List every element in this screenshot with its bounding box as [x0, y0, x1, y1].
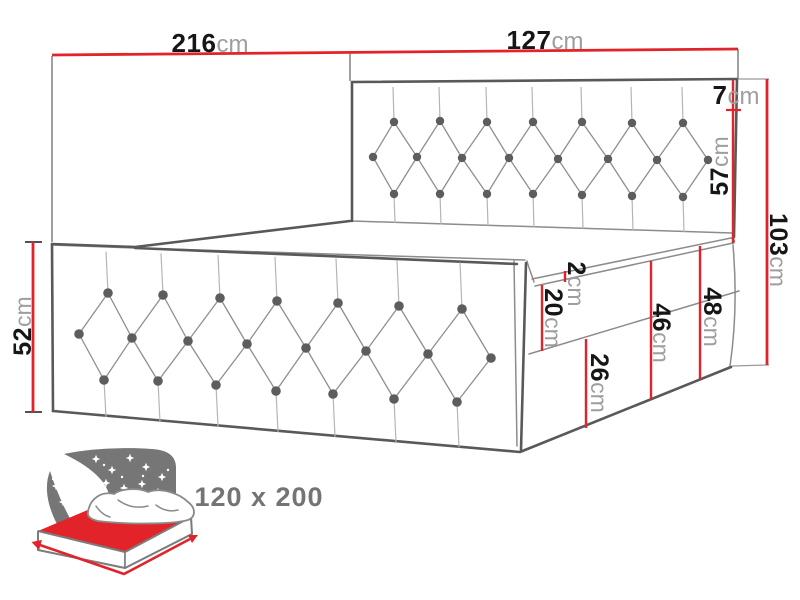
- icon-duvet: [88, 489, 194, 523]
- dim-label-20cm: 20cm: [539, 288, 567, 347]
- tufting-button: [679, 119, 687, 127]
- headboard-face: [352, 79, 737, 237]
- tufting-button: [301, 343, 311, 353]
- tufting-button: [153, 376, 163, 386]
- tufting-button: [529, 190, 537, 198]
- tufting-button: [333, 298, 343, 308]
- tufting-button: [486, 353, 496, 363]
- tufting-button: [271, 386, 281, 396]
- tufting-button: [328, 389, 338, 399]
- tufting-button: [158, 290, 168, 300]
- dim-line-216-127: [52, 49, 738, 55]
- tufting-button: [604, 155, 612, 163]
- extension-line-103-bottom: [732, 365, 769, 366]
- tufting-button: [99, 375, 109, 385]
- tufting-button: [628, 119, 636, 127]
- tufting-button: [390, 190, 398, 198]
- dim-label-52cm: 52cm: [9, 296, 37, 355]
- bed-size-icon: 120 x 200: [32, 448, 324, 574]
- side-panel-left-edge: [52, 244, 53, 411]
- tufting-button: [74, 329, 84, 339]
- tufting-button: [483, 118, 491, 126]
- dim-label-103cm: 103cm: [764, 213, 792, 287]
- bed-drawing: [52, 79, 739, 452]
- tufting-button: [679, 193, 687, 201]
- tufting-button: [436, 117, 444, 125]
- dim-label-26cm: 26cm: [585, 353, 613, 412]
- tufting-button: [390, 118, 398, 126]
- tufting-button: [578, 118, 586, 126]
- dim-label-7cm: 7cm: [713, 80, 760, 110]
- tufting-button: [529, 118, 537, 126]
- tufting-button: [183, 336, 193, 346]
- side-panel-face: [52, 244, 521, 450]
- tufting-button: [413, 153, 421, 161]
- tufting-button: [458, 154, 466, 162]
- size-label: 120 x 200: [194, 482, 323, 512]
- tufting-button: [394, 301, 404, 311]
- icon-headboard-swoosh: [47, 471, 73, 524]
- tufting-button: [554, 155, 562, 163]
- icon-duvet-shape: [88, 489, 194, 523]
- tufting-button: [272, 296, 282, 306]
- tufting-button: [369, 153, 377, 161]
- tufting-button: [436, 190, 444, 198]
- tufting-button: [653, 156, 661, 164]
- dim-label-57cm: 57cm: [706, 136, 734, 195]
- tufting-button: [215, 293, 225, 303]
- tufting-button: [389, 394, 399, 404]
- tufting-button: [457, 304, 467, 314]
- tufting-button: [211, 380, 221, 390]
- diagram-canvas: 216cm 127cm 7cm 57cm 103cm 52cm 2cm 20cm…: [0, 0, 800, 600]
- dim-label-46cm: 46cm: [647, 303, 675, 362]
- bed-dimension-diagram: 216cm 127cm 7cm 57cm 103cm 52cm 2cm 20cm…: [0, 0, 800, 600]
- dim-label-127cm: 127cm: [507, 25, 584, 55]
- tufting-button: [361, 346, 371, 356]
- tufting-button: [483, 190, 491, 198]
- tufting-button: [103, 288, 113, 298]
- tufting-button: [578, 191, 586, 199]
- tufting-button: [452, 397, 462, 407]
- tufting-button: [423, 349, 433, 359]
- tufting-button: [505, 154, 513, 162]
- dim-label-216cm: 216cm: [172, 28, 249, 58]
- tufting-button: [242, 339, 252, 349]
- tufting-button: [127, 333, 137, 343]
- dim-label-48cm: 48cm: [698, 287, 726, 346]
- tufting-button: [628, 192, 636, 200]
